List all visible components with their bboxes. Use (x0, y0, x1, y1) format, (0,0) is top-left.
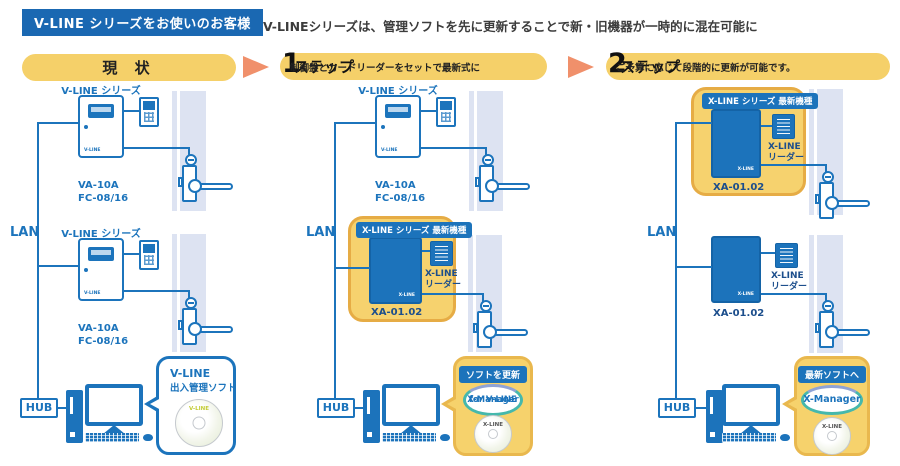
reader-keypad (144, 112, 154, 122)
hub-box: HUB (658, 398, 696, 418)
model-label: XA-01.02 (713, 181, 764, 194)
arrow-right-icon (568, 56, 594, 78)
reader-screen (440, 101, 452, 110)
header-description: V-LINEシリーズは、管理ソフトを先に更新することで新・旧機器が一時的に混在可… (263, 16, 758, 35)
reader-line1: X-LINE (771, 271, 807, 282)
lan-label: LAN (306, 225, 335, 240)
lock-knob (485, 179, 499, 193)
connection-line (336, 122, 375, 124)
card-reader-vline (139, 240, 159, 270)
reader-keypad (144, 255, 154, 265)
model-line2: FC-08/16 (375, 192, 425, 205)
pc-tower (706, 390, 723, 443)
connection-line (677, 122, 712, 124)
control-panel-xline: X-LINE (369, 237, 422, 304)
model-line2: FC-08/16 (78, 192, 128, 205)
control-panel-xline: X-LINE (711, 236, 761, 303)
panel-led (84, 268, 88, 272)
app-ellipse: X-Manager for V-LINE (463, 384, 523, 416)
card-reader-vline (139, 97, 159, 127)
cd-icon: V-LINE (175, 399, 223, 447)
connection-line (39, 265, 78, 267)
control-panel-xline: X-LINE (711, 109, 761, 178)
hub-box: HUB (317, 398, 355, 418)
control-panel-vline: V-LINE (78, 238, 124, 301)
connection-line (124, 147, 190, 149)
lock-knob (188, 179, 202, 193)
panel-led (381, 125, 385, 129)
highlight-badge: X-LINE シリーズ 最新機種 (702, 93, 818, 109)
panel-logo: V-LINE (84, 291, 100, 296)
panel-screen (91, 250, 111, 255)
connection-line (677, 266, 712, 268)
connection-line (421, 110, 436, 112)
card-reader-vline (436, 97, 456, 127)
reader-line2: リーダー (771, 282, 807, 293)
stage-step2-pill: ステップ 2 ご予算に応じて段階的に更新が可能です。 (606, 53, 890, 80)
lever-handle (493, 329, 528, 336)
reader-line1: X-LINE (768, 142, 804, 153)
pc-tower (66, 390, 83, 443)
bubble-subtitle: 出入管理ソフト (170, 380, 237, 394)
highlight-badge: X-LINE シリーズ 最新機種 (356, 222, 472, 238)
lever-handle (198, 183, 233, 190)
software-bubble-current: V-LINE 出入管理ソフト V-LINE (156, 356, 236, 455)
lock-knob (188, 322, 202, 336)
lever-handle (835, 200, 870, 207)
cd-icon: X-LINE (474, 415, 512, 453)
lever-handle (495, 183, 530, 190)
door-lock (178, 153, 238, 207)
lan-label: LAN (10, 225, 39, 240)
reader-line2: リーダー (425, 280, 461, 291)
panel-logo: V-LINE (84, 148, 100, 153)
bubble-badge: 最新ソフトへ (798, 366, 866, 383)
keyboard (85, 433, 139, 442)
tower-slot (70, 397, 73, 414)
bubble-tail (447, 398, 458, 410)
connection-line (355, 407, 364, 409)
connection-line (422, 250, 430, 252)
reader-keypad (777, 119, 790, 134)
tower-slot (710, 397, 713, 414)
model-label: XA-01.02 (371, 306, 422, 319)
model-label: VA-10A FC-08/16 (78, 322, 128, 348)
deadbolt-dial (822, 300, 834, 312)
reader-line2: リーダー (768, 153, 804, 164)
door-lock (475, 153, 535, 207)
model-line1: VA-10A (78, 179, 128, 192)
panel-display (88, 104, 114, 118)
panel-logo: V-LINE (381, 148, 397, 153)
cd-hole (827, 431, 837, 441)
mouse (143, 434, 153, 441)
connection-line (696, 407, 706, 409)
software-bubble-step2: 最新ソフトへ X-Manager X-LINE (794, 356, 870, 456)
connection-line (39, 122, 78, 124)
reader-label: X-LINE リーダー (771, 271, 807, 293)
lock-knob (483, 325, 497, 339)
panel-screen (388, 107, 408, 112)
monitor (722, 384, 780, 426)
app-name-line1: X-Manager (803, 395, 860, 405)
connection-line (761, 293, 827, 295)
card-reader-xline (430, 241, 453, 266)
card-reader-xline (772, 114, 795, 139)
tower-button (367, 432, 372, 437)
stage-step1-pill: ステップ 1 制御盤とカードリーダーをセットで最新式に (280, 53, 547, 80)
app-ellipse: X-Manager (801, 385, 863, 415)
reader-label: X-LINE リーダー (768, 142, 804, 164)
customer-tag: V-LINE シリーズをお使いのお客様 (22, 9, 263, 36)
connection-line (761, 164, 827, 166)
tower-button (710, 432, 715, 437)
reader-line1: X-LINE (425, 269, 461, 280)
lan-trunk-line (334, 122, 336, 399)
reader-keypad (435, 246, 448, 261)
deadbolt-dial (482, 154, 494, 166)
deadbolt-dial (822, 171, 834, 183)
connection-line (58, 407, 67, 409)
cd-hole (488, 429, 498, 439)
keyboard (382, 433, 436, 442)
control-panel-vline: V-LINE (375, 95, 421, 158)
pc-tower (363, 390, 380, 443)
panel-logo: X-LINE (738, 167, 754, 172)
reader-keypad (441, 112, 451, 122)
customer-tag-label: V-LINE シリーズをお使いのお客様 (34, 17, 251, 32)
connection-line (124, 253, 139, 255)
cd-icon: X-LINE (813, 417, 851, 455)
panel-logo: X-LINE (738, 292, 754, 297)
door-lock (178, 296, 238, 350)
panel-logo: X-LINE (399, 293, 415, 298)
model-line2: FC-08/16 (78, 335, 128, 348)
lock-knob (825, 196, 839, 210)
step2-note: ご予算に応じて段階的に更新が可能です。 (616, 60, 796, 74)
deadbolt-dial (480, 300, 492, 312)
connection-line (422, 293, 484, 295)
reader-screen (143, 101, 155, 110)
cd-hole (193, 417, 206, 430)
model-label: VA-10A FC-08/16 (78, 179, 128, 205)
lan-trunk-line (37, 122, 39, 399)
door-lock (815, 170, 875, 224)
lan-trunk-line (675, 122, 677, 399)
keyboard (722, 433, 776, 442)
bubble-title: V-LINE (170, 367, 210, 380)
hub-box: HUB (20, 398, 58, 418)
connection-line (761, 125, 772, 127)
lever-handle (835, 329, 870, 336)
door-lock (815, 299, 875, 353)
software-bubble-step1: ソフトを更新 X-Manager for V-LINE X-LINE (453, 356, 533, 456)
panel-display (385, 104, 411, 118)
model-line1: VA-10A (78, 322, 128, 335)
reader-keypad (780, 248, 793, 263)
reader-label: X-LINE リーダー (425, 269, 461, 291)
tower-button (70, 432, 75, 437)
monitor (85, 384, 143, 426)
deadbolt-dial (185, 154, 197, 166)
connection-line (124, 290, 190, 292)
door-lock (473, 299, 533, 353)
model-label: VA-10A FC-08/16 (375, 179, 425, 205)
arrow-right-icon (243, 56, 269, 78)
stage-current-title: 現 状 (102, 57, 155, 78)
cd-label: X-LINE (814, 424, 850, 430)
reader-screen (143, 244, 155, 253)
bubble-badge: ソフトを更新 (459, 366, 527, 383)
lever-handle (198, 326, 233, 333)
lock-knob (825, 325, 839, 339)
model-label: XA-01.02 (713, 307, 764, 320)
bubble-tail (150, 398, 161, 410)
step1-note: 制御盤とカードリーダーをセットで最新式に (290, 60, 480, 74)
cd-label: V-LINE (176, 406, 222, 412)
cd-label: X-LINE (475, 422, 511, 428)
lan-label: LAN (647, 225, 676, 240)
bubble-tail (788, 398, 799, 410)
connection-line (124, 110, 139, 112)
tower-slot (367, 397, 370, 414)
deadbolt-dial (185, 297, 197, 309)
model-line1: VA-10A (375, 179, 425, 192)
connection-line (421, 147, 487, 149)
panel-led (84, 125, 88, 129)
control-panel-vline: V-LINE (78, 95, 124, 158)
panel-display (88, 247, 114, 261)
mouse (440, 434, 450, 441)
monitor (382, 384, 440, 426)
app-name-line2: for V-LINE (469, 395, 517, 405)
mouse (780, 434, 790, 441)
upgrade-path-diagram: V-LINE シリーズをお使いのお客様 V-LINEシリーズは、管理ソフトを先に… (0, 0, 900, 466)
stage-current-pill: 現 状 (22, 54, 236, 81)
connection-line (761, 252, 775, 254)
panel-screen (91, 107, 111, 112)
connection-line (336, 267, 370, 269)
card-reader-xline (775, 243, 798, 268)
